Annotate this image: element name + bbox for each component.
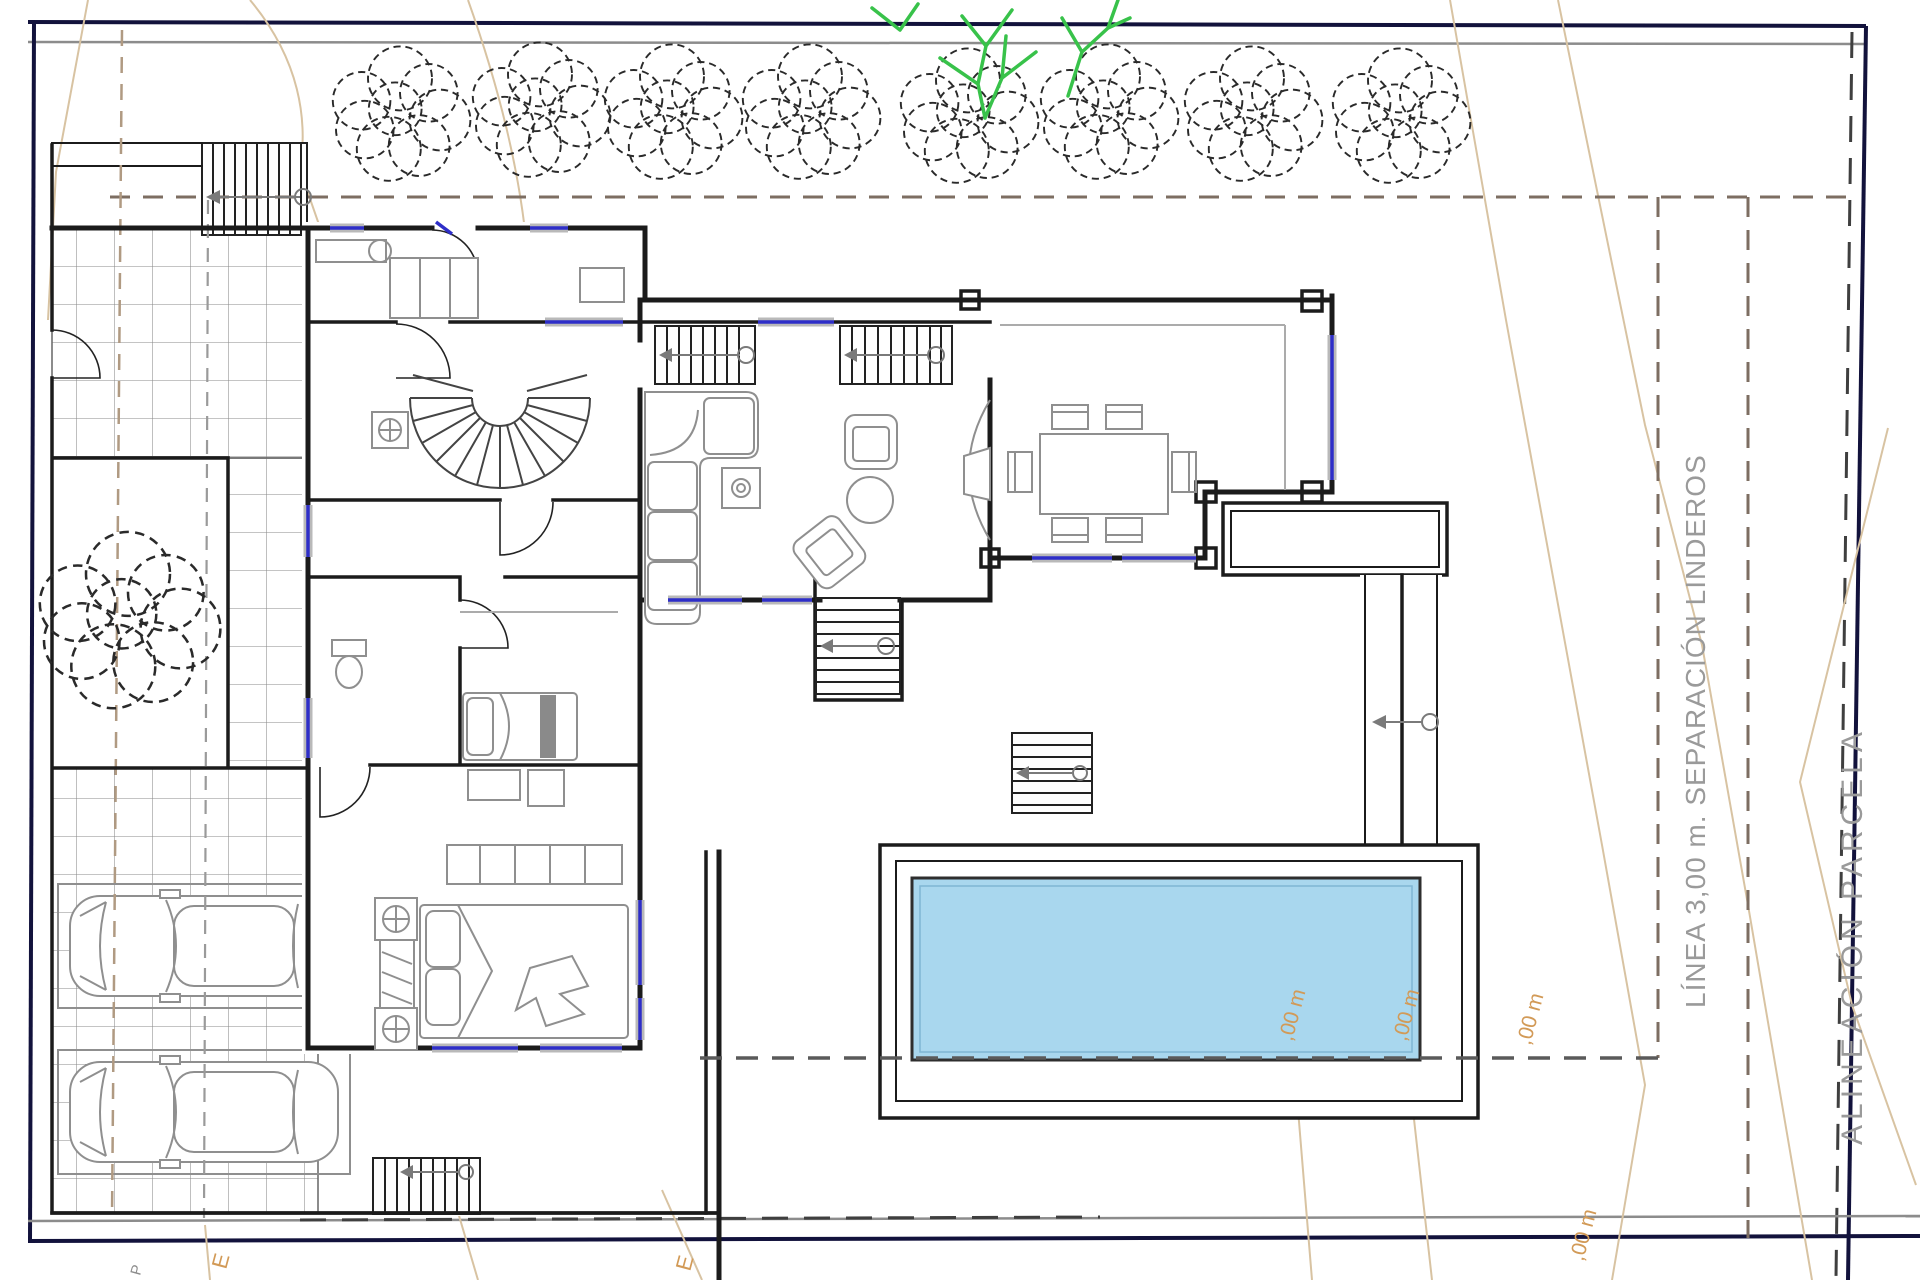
bed-headboard xyxy=(540,695,556,758)
marker-p: P xyxy=(127,1263,146,1277)
coffee-table xyxy=(847,477,893,523)
hall-lamp xyxy=(372,412,408,448)
staircase-entrance xyxy=(52,143,307,235)
nightstand-lamp-2 xyxy=(375,1008,417,1050)
closet-1 xyxy=(468,770,520,800)
closet-2 xyxy=(528,770,564,806)
tree-icon xyxy=(1041,44,1179,178)
contour-label-3: ,00 m xyxy=(1513,991,1549,1048)
tree-icon xyxy=(333,46,471,180)
boundary-bottom xyxy=(28,1236,1920,1241)
wardrobe xyxy=(447,845,622,884)
boundary-top-inner xyxy=(28,42,1866,44)
side-table xyxy=(722,468,760,508)
tree-icon xyxy=(901,48,1039,182)
courtyard-tiles xyxy=(52,228,306,458)
tree-icon xyxy=(743,44,881,178)
pool-water xyxy=(912,878,1420,1060)
tree-icon xyxy=(1185,46,1323,180)
side-path-tiles xyxy=(228,458,306,768)
tv-unit xyxy=(964,448,990,500)
tree-icon xyxy=(1333,48,1471,182)
patio-tree-icon xyxy=(40,532,221,708)
single-bed xyxy=(463,693,577,760)
tree-icon xyxy=(473,42,611,176)
terrace-slab xyxy=(1223,503,1447,575)
nightstand-lamp-1 xyxy=(375,898,417,940)
kitchen-island xyxy=(390,258,478,318)
dining-table xyxy=(1040,434,1168,514)
marker-e-2: E xyxy=(671,1253,699,1274)
kitchen-counter xyxy=(316,240,386,262)
kitchen-cabinet xyxy=(580,268,624,302)
green-tree-icon xyxy=(872,0,1130,118)
boundary-left xyxy=(30,22,34,1242)
tree-icon xyxy=(605,44,743,178)
separation-linderos-label: LÍNEA 3,00 m. SEPARACIÓN LINDEROS xyxy=(1680,454,1711,1008)
floor-plan-canvas: LÍNEA 3,00 m. SEPARACIÓN LINDEROS ALINEA… xyxy=(0,0,1920,1280)
double-bed xyxy=(420,905,628,1038)
alineacion-parcela-label: ALINEACIÓN PARCELA xyxy=(1836,727,1869,1145)
colonnade xyxy=(1360,575,1442,848)
marker-e-1: E xyxy=(207,1251,235,1272)
boundary-top xyxy=(28,22,1866,26)
pool xyxy=(880,845,1478,1118)
